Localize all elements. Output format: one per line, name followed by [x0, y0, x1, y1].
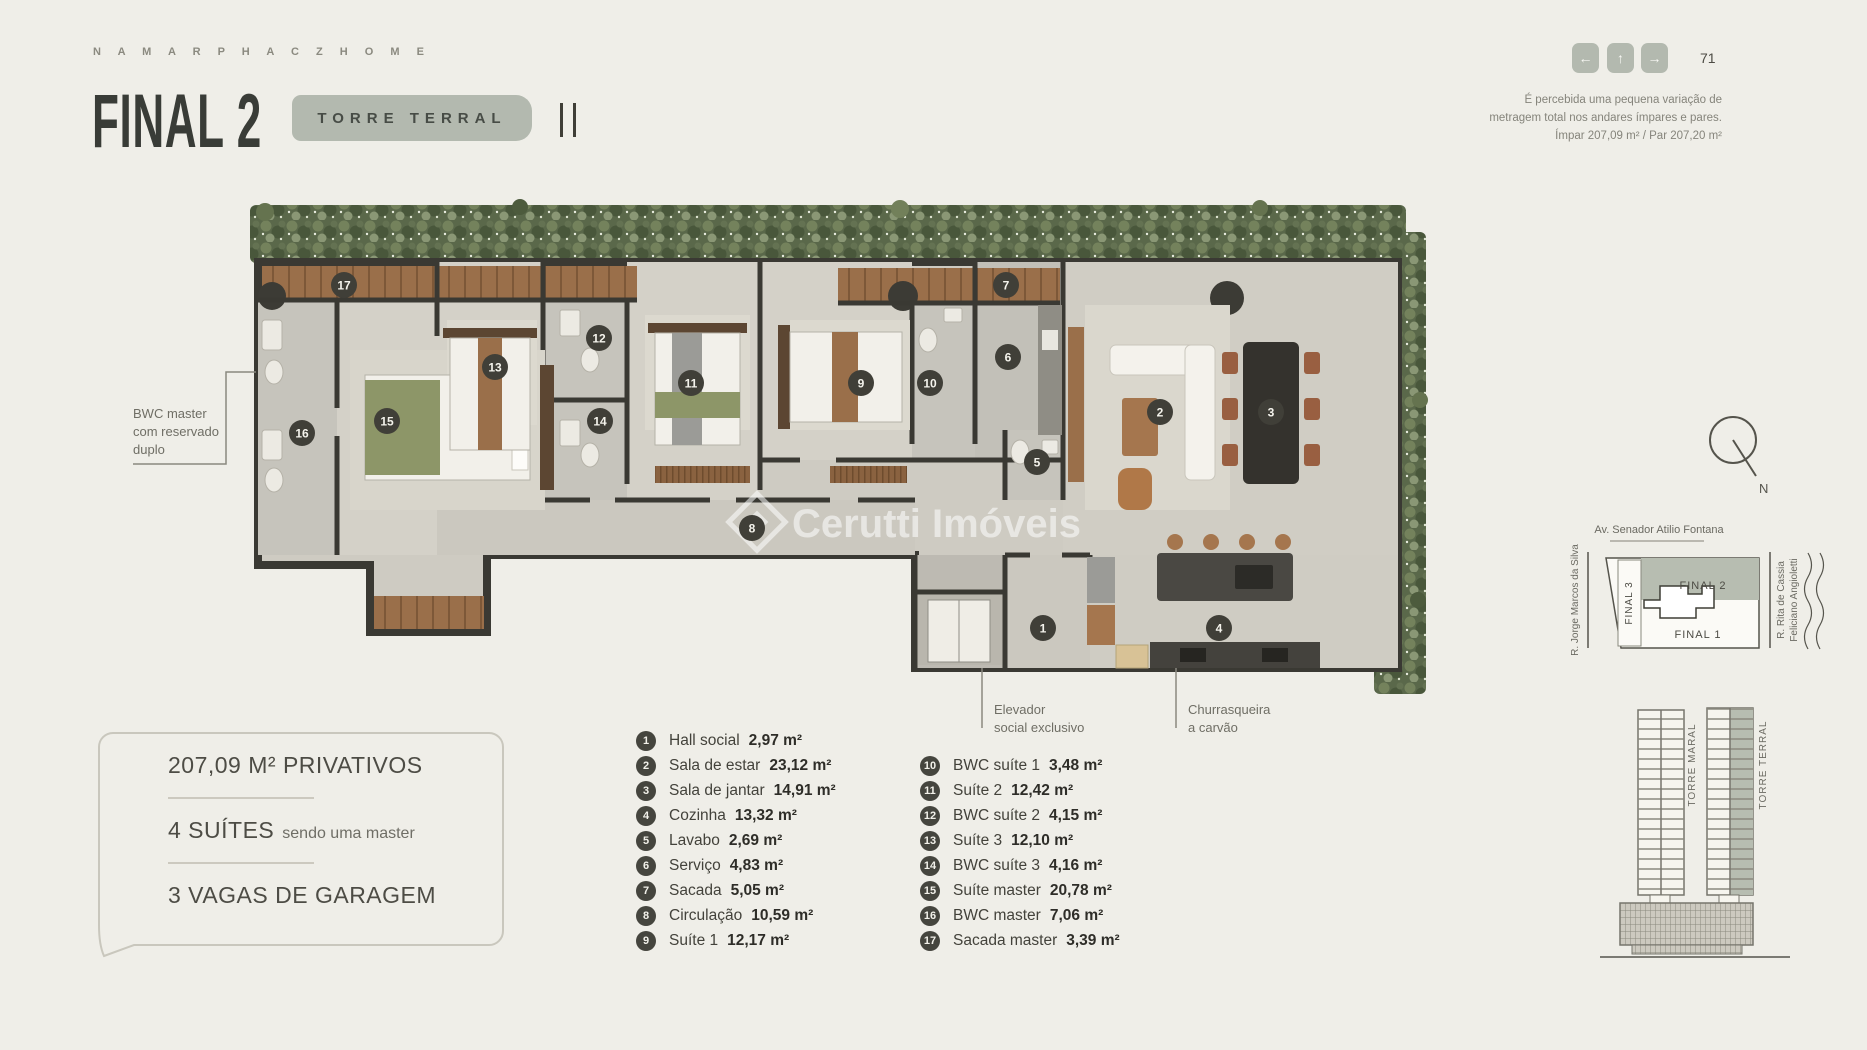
legend-value: 2,69 m² — [729, 832, 782, 850]
legend-number: 2 — [636, 756, 656, 776]
legend-column-right: 10BWC suíte 13,48 m²11Suíte 212,42 m²12B… — [920, 753, 1120, 953]
summary-content: 207,09 M² PRIVATIVOS 4 SUÍTESsendo uma m… — [168, 752, 436, 909]
legend-label: Cozinha — [669, 807, 726, 825]
compass: N — [1710, 417, 1768, 496]
legend-label: Suíte 3 — [953, 832, 1002, 850]
legend-item-13: 13Suíte 312,10 m² — [920, 828, 1120, 853]
legend-label: Circulação — [669, 907, 742, 925]
legend-label: Suíte master — [953, 882, 1041, 900]
legend-value: 4,15 m² — [1049, 807, 1102, 825]
legend-item-14: 14BWC suíte 34,16 m² — [920, 853, 1120, 878]
unit-summary-box: 207,09 M² PRIVATIVOS 4 SUÍTESsendo uma m… — [90, 730, 520, 975]
legend-label: Sala de estar — [669, 757, 760, 775]
suites-count: 4 SUÍTES — [168, 817, 274, 843]
legend-column-left: 1Hall social2,97 m²2Sala de estar23,12 m… — [636, 728, 836, 953]
legend-number: 4 — [636, 806, 656, 826]
nav-back-button[interactable]: ← — [1572, 43, 1599, 73]
callout-elevator: Elevador social exclusivo — [982, 668, 1084, 735]
arrow-left-icon: ← — [1579, 50, 1593, 66]
divider — [168, 862, 314, 864]
callout-text: duplo — [133, 442, 165, 457]
street-top-label: Av. Senador Atilio Fontana — [1594, 524, 1724, 536]
callout-text: com reservado — [133, 424, 219, 439]
legend-label: Suíte 1 — [669, 932, 718, 950]
metragem-note: É percebida uma pequena variação de metr… — [1422, 92, 1722, 145]
street-right-label: R. Rita de Cassia — [1776, 561, 1787, 639]
room-marker-number: 10 — [923, 377, 937, 391]
nav-forward-button[interactable]: → — [1641, 43, 1668, 73]
legend-number: 15 — [920, 881, 940, 901]
note-line: Ímpar 207,09 m² / Par 207,20 m² — [1555, 130, 1722, 142]
room-marker-number: 4 — [1216, 622, 1223, 636]
room-marker-number: 5 — [1034, 456, 1041, 470]
legend-item-11: 11Suíte 212,42 m² — [920, 778, 1120, 803]
room-marker-number: 9 — [858, 377, 865, 391]
legend-label: BWC suíte 3 — [953, 857, 1040, 875]
legend-value: 3,39 m² — [1066, 932, 1119, 950]
watermark-text: Cerutti Imóveis — [792, 502, 1081, 546]
legend-value: 10,59 m² — [751, 907, 813, 925]
private-area: 207,09 M² PRIVATIVOS — [168, 752, 436, 779]
legend-number: 7 — [636, 881, 656, 901]
room-marker-number: 1 — [1040, 622, 1047, 636]
room-marker-number: 14 — [593, 415, 607, 429]
room-marker-number: 7 — [1003, 279, 1010, 293]
legend-label: Lavabo — [669, 832, 720, 850]
room-marker-number: 16 — [295, 427, 309, 441]
legend-label: Hall social — [669, 732, 740, 750]
room-marker-number: 13 — [488, 361, 502, 375]
legend-value: 12,42 m² — [1011, 782, 1073, 800]
callout-text: Churrasqueira — [1188, 702, 1271, 717]
page-title: FINAL 2 — [92, 78, 262, 165]
room-marker-number: 12 — [592, 332, 606, 346]
room-marker-number: 3 — [1268, 406, 1275, 420]
legend-value: 7,06 m² — [1050, 907, 1103, 925]
legend-value: 4,16 m² — [1049, 857, 1102, 875]
legend-value: 5,05 m² — [731, 882, 784, 900]
legend-label: Sala de jantar — [669, 782, 765, 800]
legend-value: 4,83 m² — [730, 857, 783, 875]
legend-item-16: 16BWC master7,06 m² — [920, 903, 1120, 928]
suites-note: sendo uma master — [282, 825, 415, 842]
nav-up-button[interactable]: ↑ — [1607, 43, 1634, 73]
map-final3-label: FINAL 3 — [1624, 581, 1635, 624]
arrow-right-icon: → — [1648, 50, 1662, 66]
legend-number: 3 — [636, 781, 656, 801]
room-marker-number: 11 — [685, 377, 698, 391]
legend-label: BWC suíte 1 — [953, 757, 1040, 775]
legend-item-9: 9Suíte 112,17 m² — [636, 928, 836, 953]
suites-line: 4 SUÍTESsendo uma master — [168, 817, 436, 844]
map-final1-label: FINAL 1 — [1675, 629, 1722, 641]
room-marker-number: 8 — [749, 522, 756, 536]
legend-value: 2,97 m² — [749, 732, 802, 750]
legend-number: 13 — [920, 831, 940, 851]
decorative-bar — [573, 103, 576, 137]
legend-item-10: 10BWC suíte 13,48 m² — [920, 753, 1120, 778]
callout-text: Elevador — [994, 702, 1046, 717]
legend-item-2: 2Sala de estar23,12 m² — [636, 753, 836, 778]
legend-number: 8 — [636, 906, 656, 926]
legend-value: 13,32 m² — [735, 807, 797, 825]
legend-value: 14,91 m² — [774, 782, 836, 800]
location-panel: N Av. Senador Atilio Fontana R. Jorge Ma… — [1530, 390, 1867, 990]
legend-number: 12 — [920, 806, 940, 826]
legend-item-3: 3Sala de jantar14,91 m² — [636, 778, 836, 803]
legend-item-5: 5Lavabo2,69 m² — [636, 828, 836, 853]
tower-badge: TORRE TERRAL — [292, 95, 532, 141]
decorative-bar — [560, 103, 563, 137]
legend-number: 1 — [636, 731, 656, 751]
floor-plan: Cerutti Imóveis 123456789101112131415161… — [90, 180, 1430, 740]
legend-item-6: 6Serviço4,83 m² — [636, 853, 836, 878]
legend-number: 5 — [636, 831, 656, 851]
legend-label: Sacada master — [953, 932, 1057, 950]
legend-number: 11 — [920, 781, 940, 801]
brand-name: N A M A R P H A C Z H O M E — [93, 46, 431, 58]
legend-label: Serviço — [669, 857, 721, 875]
street-left-label: R. Jorge Marcos da Silva — [1570, 544, 1581, 656]
callout-text: a carvão — [1188, 720, 1238, 735]
legend-value: 3,48 m² — [1049, 757, 1102, 775]
page-number: 71 — [1700, 50, 1716, 66]
legend-value: 12,17 m² — [727, 932, 789, 950]
legend-number: 16 — [920, 906, 940, 926]
legend-number: 9 — [636, 931, 656, 951]
legend-number: 10 — [920, 756, 940, 776]
legend-value: 23,12 m² — [769, 757, 831, 775]
arrow-up-icon: ↑ — [1617, 50, 1624, 66]
legend-item-15: 15Suíte master20,78 m² — [920, 878, 1120, 903]
page: { "header": { "brand": "N A M A R P H A … — [0, 0, 1867, 1050]
callout-text: BWC master — [133, 406, 207, 421]
river-line — [1817, 553, 1824, 649]
legend-number: 6 — [636, 856, 656, 876]
tower-elevation: TORRE MARAL TORRE TERRAL — [1600, 708, 1790, 957]
room-marker-number: 15 — [380, 415, 394, 429]
legend-label: BWC master — [953, 907, 1041, 925]
legend-item-8: 8Circulação10,59 m² — [636, 903, 836, 928]
note-line: É percebida uma pequena variação de — [1524, 94, 1722, 106]
legend-item-1: 1Hall social2,97 m² — [636, 728, 836, 753]
legend-number: 17 — [920, 931, 940, 951]
legend-number: 14 — [920, 856, 940, 876]
legend-item-12: 12BWC suíte 24,15 m² — [920, 803, 1120, 828]
legend-value: 12,10 m² — [1011, 832, 1073, 850]
callout-text: social exclusivo — [994, 720, 1084, 735]
callout-bwc-master: BWC master com reservado duplo — [133, 372, 256, 464]
river-line — [1805, 553, 1812, 649]
tower-maral-label: TORRE MARAL — [1687, 723, 1698, 806]
room-marker-number: 2 — [1157, 406, 1164, 420]
room-marker-number: 17 — [337, 279, 351, 293]
garage-count: 3 VAGAS DE GARAGEM — [168, 882, 436, 909]
callout-barbecue: Churrasqueira a carvão — [1176, 668, 1271, 735]
legend-label: Sacada — [669, 882, 722, 900]
legend-item-7: 7Sacada5,05 m² — [636, 878, 836, 903]
legend-label: Suíte 2 — [953, 782, 1002, 800]
map-final2-label: FINAL 2 — [1680, 580, 1727, 592]
legend-value: 20,78 m² — [1050, 882, 1112, 900]
north-label: N — [1759, 481, 1768, 496]
site-map: Av. Senador Atilio Fontana R. Jorge Marc… — [1570, 524, 1824, 656]
note-line: metragem total nos andares ímpares e par… — [1489, 112, 1722, 124]
divider — [168, 797, 314, 799]
legend-item-17: 17Sacada master3,39 m² — [920, 928, 1120, 953]
legend-item-4: 4Cozinha13,32 m² — [636, 803, 836, 828]
street-right-label2: Feliciano Angioletti — [1789, 558, 1800, 641]
tower-terral-label: TORRE TERRAL — [1758, 721, 1769, 810]
legend-label: BWC suíte 2 — [953, 807, 1040, 825]
room-marker-number: 6 — [1005, 351, 1012, 365]
